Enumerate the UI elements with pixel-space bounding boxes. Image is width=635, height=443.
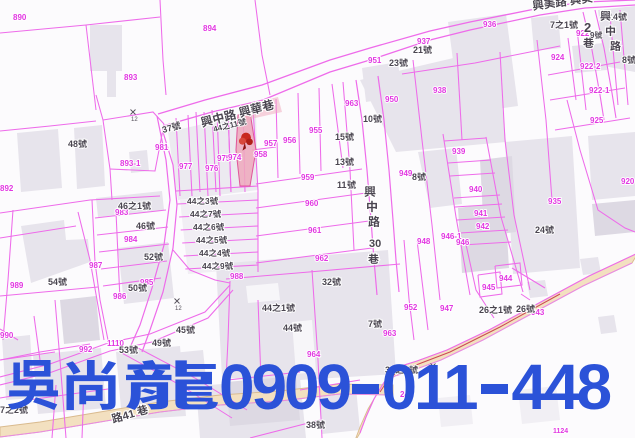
svg-text:26: 26	[516, 304, 526, 314]
svg-text:988: 988	[230, 272, 244, 281]
svg-text:44: 44	[187, 196, 197, 206]
svg-text:1: 1	[498, 305, 503, 315]
svg-text:925: 925	[590, 116, 604, 125]
svg-text:944: 944	[499, 274, 513, 283]
svg-text:962: 962	[315, 254, 329, 263]
svg-text:11: 11	[337, 180, 347, 190]
svg-text:893: 893	[124, 73, 138, 82]
svg-text:30: 30	[369, 238, 381, 250]
svg-text:960: 960	[305, 199, 319, 208]
svg-text:958: 958	[254, 150, 268, 159]
svg-text:1: 1	[281, 303, 286, 313]
svg-text:990: 990	[0, 331, 14, 340]
svg-text:957: 957	[264, 139, 278, 148]
svg-text:945: 945	[482, 283, 496, 292]
svg-text:53: 53	[119, 345, 129, 355]
svg-text:44: 44	[190, 209, 200, 219]
svg-text:7: 7	[368, 319, 373, 329]
svg-text:924: 924	[551, 53, 565, 62]
svg-text:21: 21	[413, 45, 423, 55]
svg-text:922-2: 922-2	[580, 62, 601, 71]
svg-text:949: 949	[399, 169, 413, 178]
svg-text:44: 44	[199, 248, 209, 258]
svg-text:952: 952	[404, 303, 418, 312]
svg-text:963: 963	[383, 329, 397, 338]
svg-text:977: 977	[179, 162, 193, 171]
svg-text:23: 23	[389, 58, 399, 68]
svg-text:1: 1	[564, 20, 569, 30]
svg-text:45: 45	[176, 325, 186, 335]
svg-text:940: 940	[469, 185, 483, 194]
svg-text:936: 936	[483, 20, 497, 29]
svg-text:44: 44	[283, 323, 293, 333]
svg-text:961: 961	[308, 226, 322, 235]
svg-text:8: 8	[412, 172, 417, 182]
svg-text:7: 7	[0, 405, 5, 415]
svg-text:44: 44	[202, 261, 212, 271]
svg-text:32: 32	[322, 277, 332, 287]
svg-text:893-1: 893-1	[120, 159, 141, 168]
svg-text:963: 963	[345, 99, 359, 108]
svg-text:011: 011	[382, 351, 477, 423]
svg-text:44: 44	[196, 235, 206, 245]
svg-text:50: 50	[128, 283, 138, 293]
svg-text:892: 892	[0, 184, 14, 193]
svg-text:52: 52	[144, 252, 154, 262]
svg-text:948: 948	[417, 237, 431, 246]
svg-text:939: 939	[452, 147, 466, 156]
svg-text:992: 992	[79, 345, 93, 354]
svg-text:10: 10	[363, 114, 373, 124]
svg-text:8: 8	[622, 55, 627, 65]
svg-text:974: 974	[228, 153, 242, 162]
svg-text:959: 959	[301, 173, 315, 182]
svg-text:950: 950	[385, 95, 399, 104]
svg-text:1: 1	[137, 201, 142, 211]
svg-text:12: 12	[131, 117, 138, 123]
svg-text:1124: 1124	[553, 428, 568, 435]
svg-text:890: 890	[13, 13, 27, 22]
svg-text:48: 48	[68, 139, 78, 149]
svg-text:935: 935	[548, 197, 562, 206]
svg-text:947: 947	[440, 304, 454, 313]
svg-text:942: 942	[476, 222, 490, 231]
svg-text:15: 15	[335, 132, 345, 142]
svg-text:7: 7	[550, 20, 555, 30]
svg-text:946: 946	[456, 238, 470, 247]
svg-text:920: 920	[621, 177, 635, 186]
svg-text:956: 956	[283, 136, 297, 145]
svg-text:0909: 0909	[219, 351, 351, 423]
svg-text:922-1: 922-1	[589, 86, 610, 95]
svg-text:24: 24	[535, 225, 545, 235]
svg-text:941: 941	[474, 209, 488, 218]
svg-text:44: 44	[193, 222, 203, 232]
svg-text:989: 989	[10, 281, 24, 290]
svg-text:987: 987	[89, 261, 103, 270]
svg-text:938: 938	[433, 86, 447, 95]
svg-text:54: 54	[48, 277, 58, 287]
svg-text:951: 951	[368, 56, 382, 65]
svg-text:986: 986	[113, 292, 127, 301]
svg-text:46: 46	[136, 221, 146, 231]
svg-text:984: 984	[124, 235, 138, 244]
svg-text:955: 955	[309, 126, 323, 135]
svg-text:46: 46	[118, 201, 128, 211]
svg-text:448: 448	[512, 351, 611, 423]
svg-text:49: 49	[152, 338, 162, 348]
svg-text:894: 894	[203, 24, 217, 33]
svg-text:26: 26	[479, 305, 489, 315]
svg-text:12: 12	[175, 306, 182, 312]
svg-text:13: 13	[335, 157, 345, 167]
svg-text:976: 976	[205, 164, 219, 173]
svg-text:981: 981	[155, 143, 169, 152]
svg-text:44: 44	[262, 303, 272, 313]
